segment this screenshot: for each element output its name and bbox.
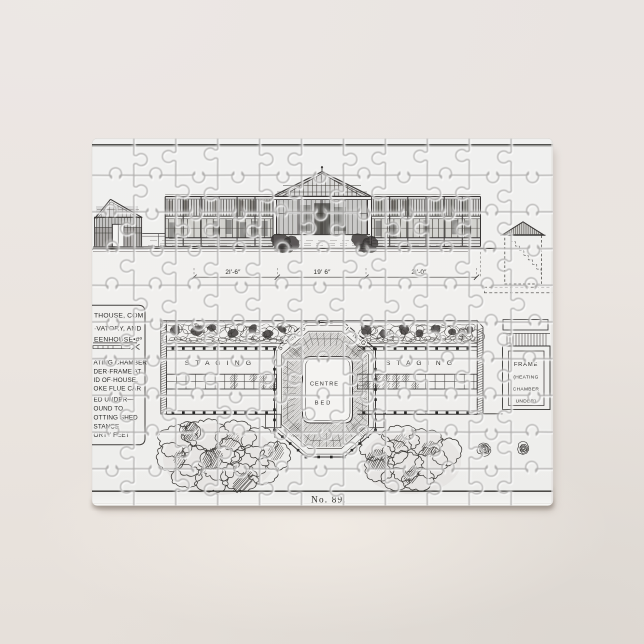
- svg-text:19′ 6″: 19′ 6″: [313, 269, 331, 276]
- svg-text:OUND TO: OUND TO: [94, 406, 124, 413]
- svg-text:BED: BED: [315, 401, 333, 407]
- svg-text:ID OF·HOUSE.: ID OF·HOUSE.: [94, 377, 139, 384]
- svg-text:EENHOUSE•#º: EENHOUSE•#º: [94, 336, 143, 343]
- svg-text:CHAMBER: CHAMBER: [513, 387, 540, 393]
- svg-text:2l′-6″: 2l′-6″: [225, 269, 241, 276]
- svg-text:(HEATING: (HEATING: [513, 375, 538, 381]
